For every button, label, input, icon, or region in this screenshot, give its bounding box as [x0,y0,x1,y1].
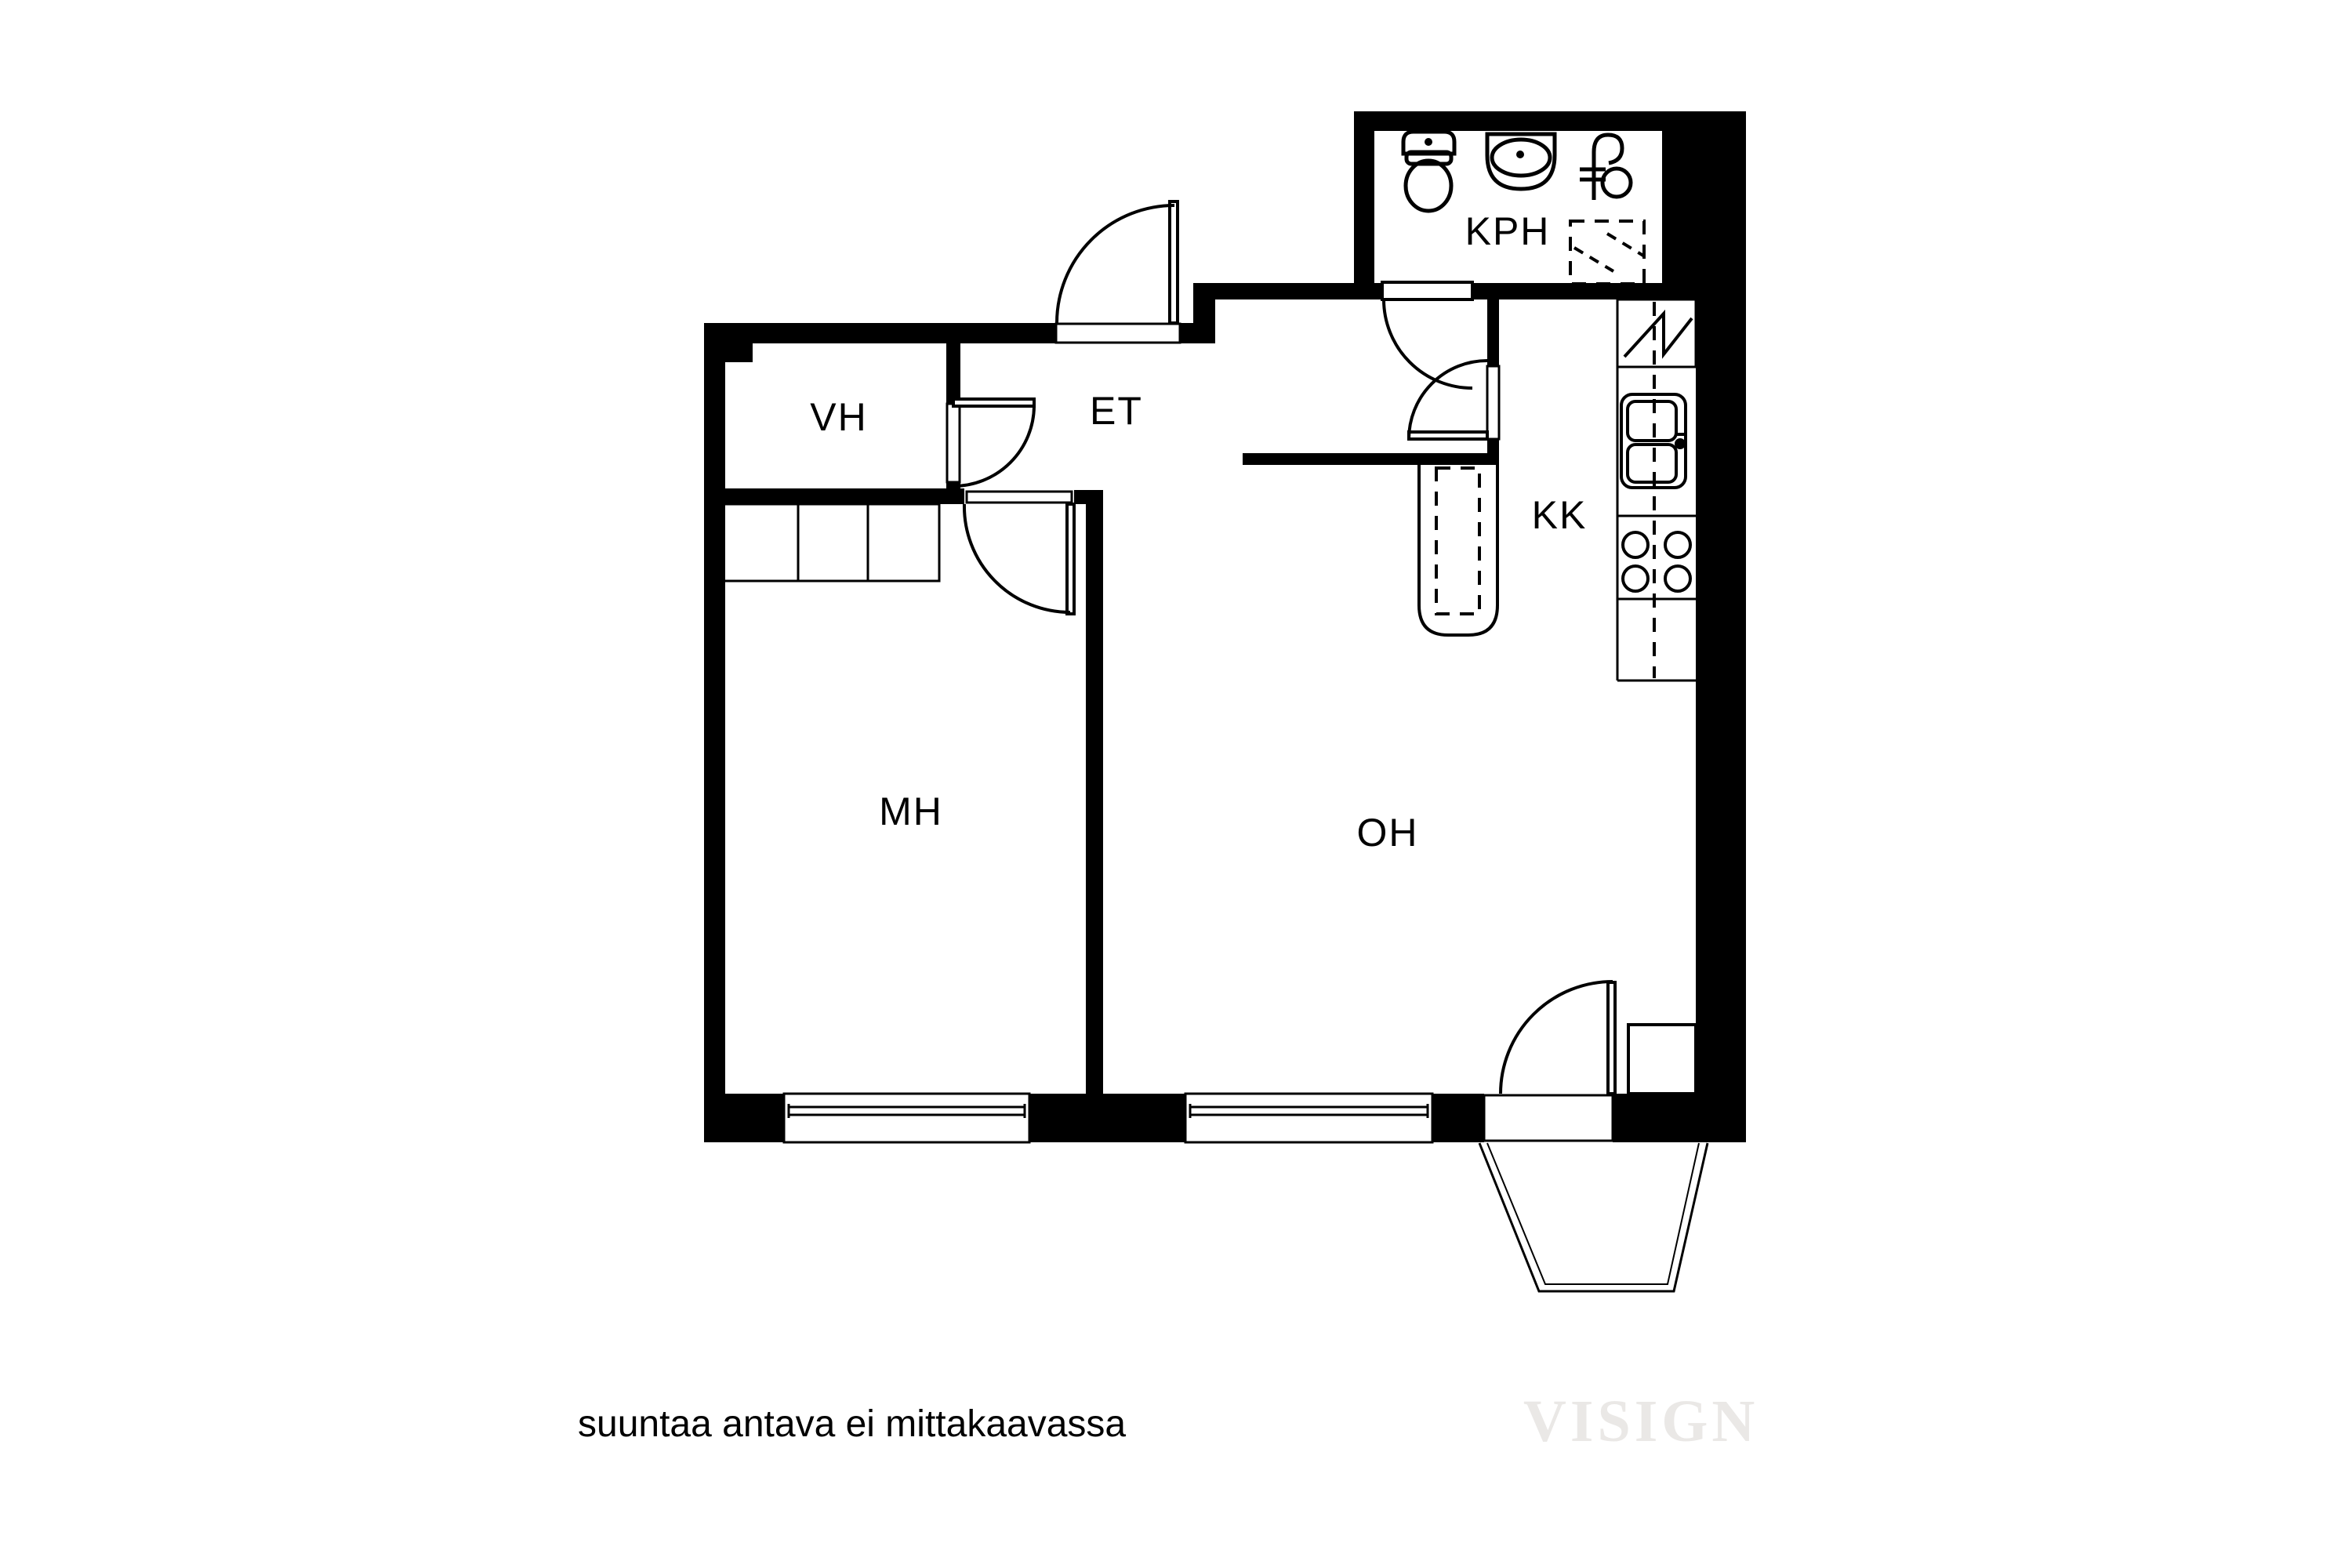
balcony-door-threshold [1484,1095,1613,1141]
wall-bottom-left [704,1094,784,1142]
kitchen-fixtures [1419,299,1696,681]
wall-kph-bottom-west [1193,283,1382,299]
wall-kph-top [1354,111,1746,131]
room-label-kph: KPH [1465,209,1551,253]
kitchen-counter [1617,299,1696,681]
wall-kph-left [1354,131,1374,283]
wall-kph-right-block [1662,131,1746,299]
balcony [1479,1143,1708,1291]
corner-cabinet [1628,1025,1696,1094]
mh-door [964,492,1074,614]
kk-door-threshold [1487,366,1499,439]
room-label-kk: KK [1532,493,1588,537]
wall-kph-bottom-east [1472,283,1662,299]
vh-door-threshold [947,404,960,482]
vh-door [947,399,1034,486]
entry-door [1056,201,1180,343]
bathroom-fixtures [1403,132,1644,284]
balcony-door-swing-arc [1501,982,1613,1094]
kitchen-peninsula [1419,465,1497,635]
dishwasher-reservation [1436,468,1479,614]
room-label-et: ET [1090,389,1143,433]
washing-machine-reservation-icon [1570,221,1644,284]
wall-right [1696,299,1746,1142]
mh-door-leaf [1067,504,1074,614]
entry-door-swing-arc [1057,205,1174,323]
shower-faucet-icon [1580,135,1631,200]
wall-mh-door-corner [1074,490,1103,504]
entry-door-threshold [1056,324,1180,343]
vh-door-swing-arc [953,406,1034,486]
disclaimer-text: suuntaa antava ei mittakaavassa [578,1403,1126,1445]
wall-bottom-pier [1432,1094,1484,1142]
floor-plan-drawing: VH ET KPH KK MH OH suuntaa antava ei mit… [0,0,2352,1568]
entry-door-leaf [1170,201,1178,323]
room-label-oh: OH [1357,811,1419,855]
wall-vh-et-upper [946,343,960,404]
balcony-door-leaf [1608,982,1615,1094]
stove-icon [1623,532,1690,591]
wall-mh-oh [1086,504,1103,1094]
room-label-mh: MH [879,789,943,833]
kph-door-leaf [1382,282,1472,299]
wall-left [704,343,725,1142]
mh-door-swing-arc [964,504,1070,612]
wall-entry-step [1193,285,1215,323]
wall-top [704,323,1056,343]
oh-window [1185,1094,1432,1142]
mh-door-threshold [967,492,1072,503]
floor-plan-page: VH ET KPH KK MH OH suuntaa antava ei mit… [0,0,2352,1568]
wardrobe [724,504,939,581]
kk-door-leaf [1409,432,1487,439]
wall-entry-jamb [1180,323,1215,343]
wall-et-oh [1243,453,1499,465]
toilet-icon [1403,132,1454,211]
wall-et-kk-lower [1487,439,1499,465]
wall-bottom-middle [1029,1094,1185,1142]
wall-bottom-right [1613,1094,1746,1142]
kph-door [1382,282,1472,388]
wall-et-kk-upper [1487,299,1499,366]
balcony-door [1484,982,1615,1141]
wall-vh-bottom [704,488,964,504]
sink-icon [1487,134,1555,189]
mh-window [784,1094,1029,1142]
kph-door-swing-arc [1384,299,1472,388]
watermark-logo: VISIGN [1523,1388,1759,1454]
fridge-icon [1617,299,1696,367]
vh-door-leaf [953,399,1034,406]
walls [704,111,1746,1142]
room-label-vh: VH [810,395,867,439]
